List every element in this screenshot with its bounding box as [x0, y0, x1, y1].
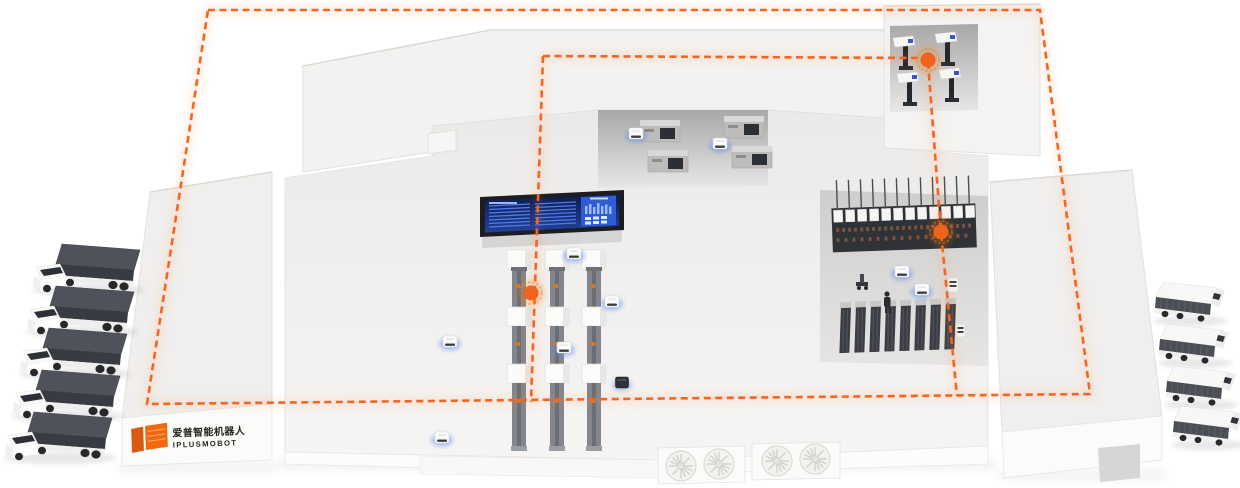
fan-icon [704, 449, 734, 479]
dock-door [1098, 444, 1140, 482]
waypoint-station-machine-row [927, 218, 955, 246]
machine-cell [724, 116, 764, 138]
waypoint-station-top-cell [914, 46, 942, 74]
machine-cell [732, 146, 772, 168]
box-truck [1172, 406, 1240, 450]
factory-scene: 爱普智能机器人 IPLUSMOBOT [0, 0, 1240, 488]
left-wing-building [122, 172, 272, 466]
screen-table-header [489, 202, 517, 204]
logo-mark-icon [131, 427, 144, 453]
monitoring-dashboard [480, 190, 624, 248]
building-complex [118, 4, 1165, 482]
rooftop-structure [428, 130, 456, 154]
cargo-truck [12, 370, 124, 422]
forklift-robot [956, 324, 965, 337]
cargo-truck [19, 328, 131, 380]
truck-fleet-right [1154, 282, 1240, 450]
box-truck [1165, 366, 1239, 410]
front-step [420, 456, 660, 478]
fan-icon [762, 446, 792, 476]
fan-icon [800, 444, 830, 474]
cargo-truck [26, 286, 138, 338]
fan-icon [666, 451, 696, 481]
box-truck [1158, 324, 1232, 368]
waypoint-station-center-line [517, 279, 545, 307]
right-wing-building [990, 170, 1162, 482]
box-truck [1154, 282, 1228, 326]
cargo-truck [4, 412, 116, 464]
machine-cell [648, 150, 688, 172]
scene-canvas: 爱普智能机器人 IPLUSMOBOT [0, 0, 1240, 488]
